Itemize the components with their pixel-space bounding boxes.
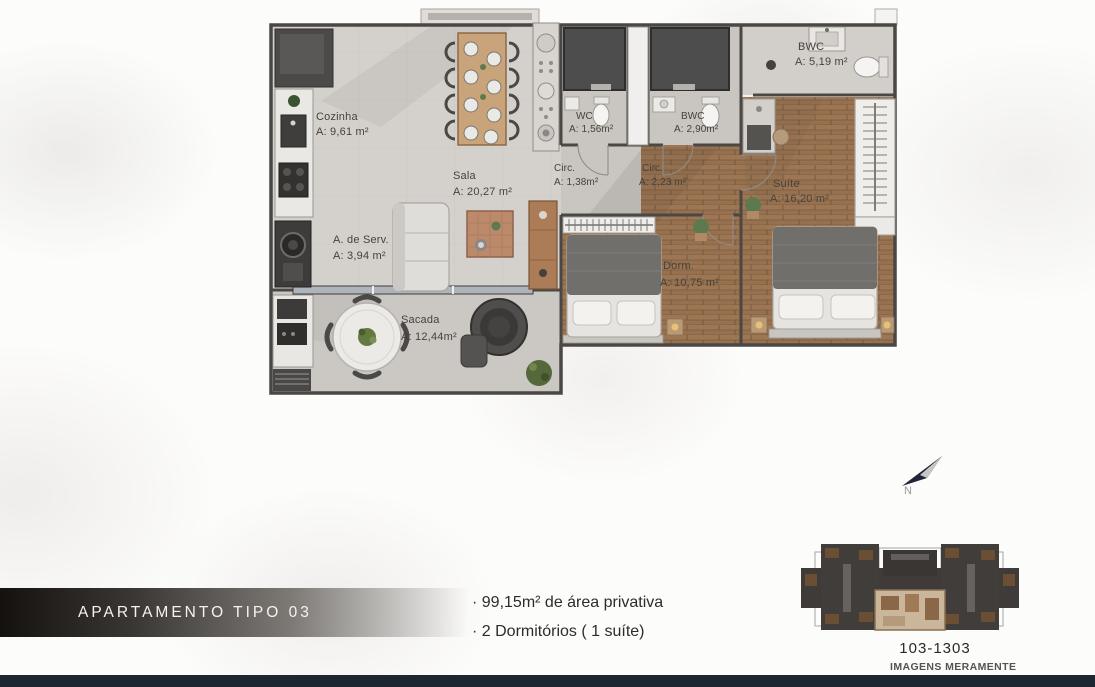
room-label-circ1: Circ.: [554, 163, 575, 174]
room-label-cozinha: Cozinha: [316, 111, 358, 123]
svg-text:A: 20,27 m²: A: 20,27 m²: [453, 186, 512, 198]
keyplan-unit-caption: 103-1303: [810, 640, 1060, 657]
room-label-wc: WC: [576, 111, 593, 122]
svg-text:A: 2,90m²: A: 2,90m²: [674, 124, 719, 135]
keyplan-thumbnail: [795, 538, 1025, 636]
room-label-suite: Suíte: [773, 178, 800, 190]
kitchen-island: [533, 23, 559, 151]
room-label-sacada: Sacada: [401, 314, 440, 326]
svg-text:A: 10,75 m²: A: 10,75 m²: [660, 277, 719, 289]
room-label-bwc1: BWC: [681, 111, 705, 122]
svg-text:A: 12,44m²: A: 12,44m²: [401, 331, 457, 343]
service-area-furniture: [275, 221, 311, 287]
shaft: [628, 27, 648, 145]
neighbor-wall-stub: [875, 9, 897, 25]
north-arrow-icon: N: [890, 448, 960, 500]
svg-text:A: 16,20 m²: A: 16,20 m²: [770, 193, 829, 205]
entry-step: [428, 13, 532, 20]
room-label-circ2: Circ.: [642, 163, 663, 174]
info-bullet-area: · 99,15m² de área privativa: [472, 588, 663, 617]
north-arrow-light: [920, 456, 942, 478]
apartment-info: · 99,15m² de área privativa · 2 Dormitór…: [472, 588, 663, 646]
svg-text:A: 5,19 m²: A: 5,19 m²: [795, 56, 848, 68]
floor-plan: Cozinha A: 9,61 m² Sala A: 20,27 m² A. d…: [263, 5, 903, 397]
svg-text:A: 3,94 m²: A: 3,94 m²: [333, 250, 386, 262]
room-label-dorm: Dorm.: [663, 260, 694, 272]
footer-strip: [0, 675, 1095, 687]
svg-text:A: 1,56m²: A: 1,56m²: [569, 124, 614, 135]
info-bullet-dorms: · 2 Dormitórios ( 1 suíte): [472, 617, 663, 646]
room-label-sala: Sala: [453, 170, 476, 182]
north-arrow-dark: [902, 456, 942, 486]
svg-text:A: 2,23 m²: A: 2,23 m²: [639, 177, 687, 188]
apartment-title-bar: APARTAMENTO TIPO 03: [0, 588, 473, 637]
keyplan-highlight-unit: [875, 590, 945, 630]
apartment-title: APARTAMENTO TIPO 03: [78, 604, 312, 622]
north-label: N: [904, 485, 912, 497]
svg-text:A: 1,38m²: A: 1,38m²: [554, 177, 599, 188]
svg-text:A: 9,61 m²: A: 9,61 m²: [316, 126, 369, 138]
room-label-servico: A. de Serv.: [333, 234, 389, 246]
room-label-bwc2: BWC: [798, 41, 824, 53]
